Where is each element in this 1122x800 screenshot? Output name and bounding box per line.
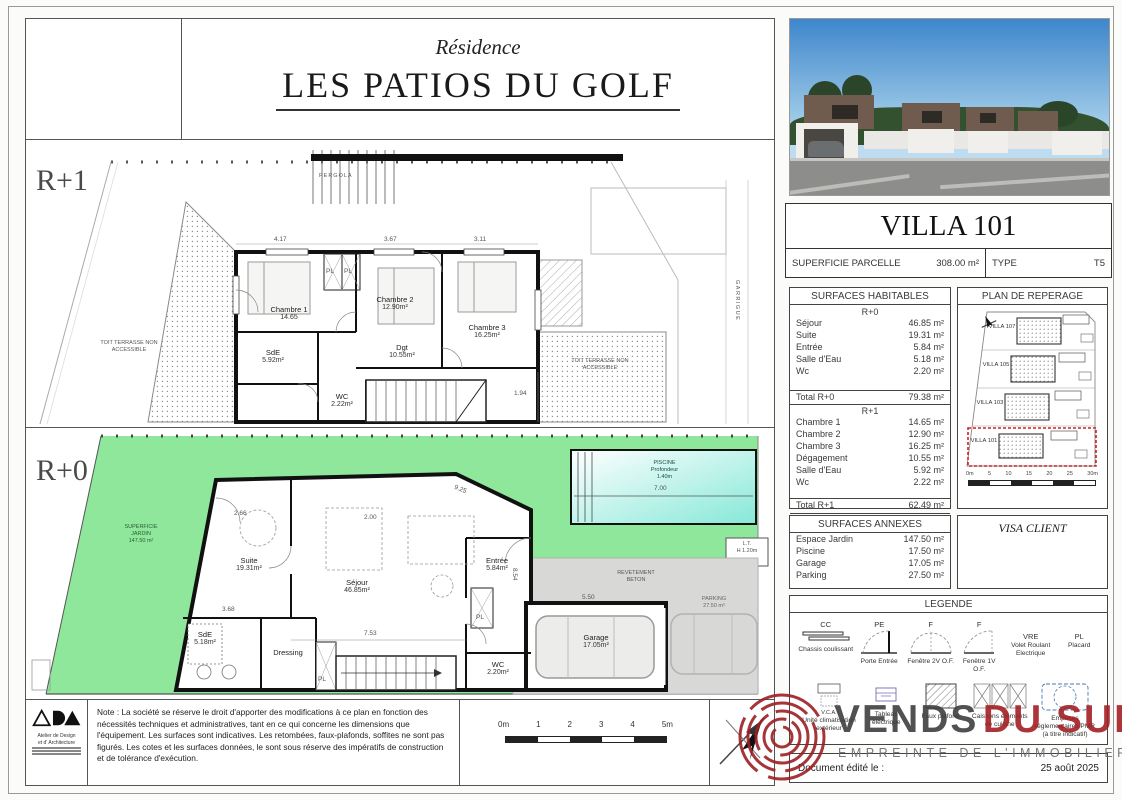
scale-bar xyxy=(505,736,667,743)
visa-client-box: VISA CLIENT xyxy=(957,515,1108,589)
plan-r1: R+1 PERGOLA 4.17 3.67 3.11 1.94 Chambre … xyxy=(25,140,775,428)
table-row: Salle d'Eau5.18 m² xyxy=(790,354,950,366)
scale-bar-ticks: 0m12345m xyxy=(498,720,673,729)
electrical-panel-icon xyxy=(873,682,899,708)
parcel-type-label: TYPE xyxy=(992,258,1017,269)
sh-r0-header: R+0 xyxy=(790,306,950,318)
r0-dim-2: 2.00 xyxy=(364,514,377,521)
r0-dim-4: 3.68 xyxy=(222,606,235,613)
r0-piscine-dim: 7.00 xyxy=(654,485,667,492)
r0-jardin-label: SUPERFICIE JARDIN 147.50 m² xyxy=(108,524,174,545)
villa-title: VILLA 101 xyxy=(786,204,1111,248)
drawing-area: Résidence LES PATIOS DU GOLF xyxy=(25,18,775,786)
r1-pergola-label: PERGOLA xyxy=(319,173,353,180)
photo-villa-upper xyxy=(1018,111,1058,133)
ada-fineprint-bar xyxy=(32,750,81,752)
legend-item-tableau: Tableau électrique xyxy=(860,682,912,739)
photo-villa-base xyxy=(908,129,954,153)
plan-reperage: PLAN DE REPERAGE VILLA xyxy=(957,287,1108,509)
parcel-surface-label: SUPERFICIE PARCELLE xyxy=(792,258,901,269)
r1-room-wc: WC2.22m² xyxy=(322,392,362,409)
r0-room-sejour: Séjour46.85m² xyxy=(326,578,388,595)
r1-room-dgt: Dgt10.55m² xyxy=(374,343,430,360)
parcel-type-value: T5 xyxy=(1094,258,1105,269)
reperage-villa-103: VILLA 103 xyxy=(976,400,1004,406)
photo-villa-base xyxy=(968,131,1008,153)
plan-reperage-map xyxy=(959,308,1106,470)
r0-room-dressing: Dressing xyxy=(262,648,314,657)
r1-floor-label: R+1 xyxy=(36,164,88,198)
table-row: Salle d'Eau5.92 m² xyxy=(790,465,950,477)
r0-piscine-label: PISCINE Profondeur 1.40m xyxy=(622,460,707,481)
legende-row1: CC Chassis coulissant PE Porte Entrée F … xyxy=(790,614,1107,674)
residence-subtitle: Résidence xyxy=(182,35,774,60)
window-2v-icon xyxy=(909,629,953,655)
plan-r1-drawing xyxy=(26,140,774,426)
table-row: Chambre 316.25 m² xyxy=(790,441,950,453)
reperage-villa-101: VILLA 101 xyxy=(970,438,998,444)
table-row: Séjour46.85 m² xyxy=(790,318,950,330)
table-row: Chambre 212.90 m² xyxy=(790,429,950,441)
surfaces-annexes-title: SURFACES ANNEXES xyxy=(790,516,950,533)
r0-pl-label-1: PL xyxy=(318,676,326,683)
ac-unit-icon xyxy=(814,682,844,708)
ada-name-line2: et d' Architecture xyxy=(26,740,87,747)
legend-item-f1v: F Fenêtre 1V O.F. xyxy=(956,620,1002,674)
r0-lt-label: L.T. H 1.20m xyxy=(727,541,767,555)
legend-item-pmr: Emprises réglementaires PMR (à titre ind… xyxy=(1033,682,1097,739)
photo-car xyxy=(808,141,844,157)
parcel-surface-value: 308.00 m² xyxy=(936,258,979,269)
r1-room-chambre3: Chambre 316.25m² xyxy=(454,323,520,340)
r1-dim-4: 1.94 xyxy=(514,390,527,397)
r1-dim-2: 3.67 xyxy=(384,236,397,243)
r1-pl-label-1: PL xyxy=(326,268,334,275)
photo-villa-window xyxy=(922,111,942,123)
table-row: Garage17.05 m² xyxy=(790,558,950,570)
r0-dim-5: 7.53 xyxy=(364,630,377,637)
legend-item-vre: VRE Volet Roulant Electrique xyxy=(1002,620,1059,674)
total-r0-row: Total R+079.38 m² xyxy=(790,390,950,403)
reperage-scale-bar xyxy=(968,480,1096,486)
surfaces-annexes-table: SURFACES ANNEXES Espace Jardin147.50 m² … xyxy=(789,515,951,589)
legend-item-cc: CC Chassis coulissant xyxy=(798,620,853,674)
pmr-clearance-icon xyxy=(1040,682,1090,712)
table-row: Dégagement10.55 m² xyxy=(790,453,950,465)
ada-fineprint-bar xyxy=(32,753,81,755)
kitchen-units-icon xyxy=(973,682,1027,710)
villa-title-box: VILLA 101 xyxy=(785,203,1112,249)
legend-item-vca: V.C.A. Unité climatisation extérieur xyxy=(800,682,858,739)
north-arrow-icon xyxy=(712,706,772,776)
r1-pl-label-2: PL xyxy=(344,268,352,275)
reperage-scale-ticks: 0m51015202530m xyxy=(966,471,1098,477)
legend-item-pe: PE Porte Entrée xyxy=(853,620,904,674)
r1-dim-1: 4.17 xyxy=(274,236,287,243)
footer-strip: Atelier de Design et d' Architecture Not… xyxy=(25,700,775,786)
legende-row2: V.C.A. Unité climatisation extérieur Tab… xyxy=(790,674,1107,739)
surfaces-habitables-title: SURFACES HABITABLES xyxy=(790,288,950,305)
r0-dim-6: 8.54 xyxy=(511,568,518,581)
document-date-value: 25 août 2025 xyxy=(1041,763,1099,774)
document-date-label: Document édité le : xyxy=(798,763,884,774)
parcel-surface-cell: SUPERFICIE PARCELLE 308.00 m² xyxy=(786,249,986,277)
reperage-villa-105: VILLA 105 xyxy=(982,362,1010,368)
r1-room-sde: SdE5.92m² xyxy=(250,348,296,365)
info-panel: VILLA 101 SUPERFICIE PARCELLE 308.00 m² … xyxy=(785,15,1112,790)
false-ceiling-icon xyxy=(924,682,958,710)
reperage-villa-107: VILLA 107 xyxy=(988,324,1016,330)
r0-revetement-label: REVETEMENT BETON xyxy=(594,570,678,584)
table-row: Espace Jardin147.50 m² xyxy=(790,534,950,546)
ada-fineprint-bar xyxy=(32,747,81,749)
table-row: Parking27.50 m² xyxy=(790,570,950,582)
visa-client-title: VISA CLIENT xyxy=(958,516,1107,536)
photo-villa-window xyxy=(980,113,996,123)
total-r1-row: Total R+162.49 m² xyxy=(790,498,950,511)
r1-terrace-right-label: TOIT TERRASSE NON ACCESSIBLE xyxy=(560,358,640,372)
legend-item-pl: PL Placard xyxy=(1059,620,1099,674)
r0-room-wc: WC2.20m² xyxy=(470,660,526,677)
r1-room-chambre1: Chambre 114.65 xyxy=(258,305,320,322)
r1-garrigue-label: GARRIGUE xyxy=(733,280,740,321)
table-row: Piscine17.50 m² xyxy=(790,546,950,558)
window-1v-icon xyxy=(962,629,996,655)
ada-logo-icon xyxy=(32,708,82,728)
r0-room-garage: Garage17.05m² xyxy=(566,633,626,650)
r0-parking-label: PARKING 27.50 m² xyxy=(674,596,754,610)
legend-item-fauxplafond: Faux plafond xyxy=(915,682,967,739)
parcel-row: SUPERFICIE PARCELLE 308.00 m² TYPE T5 xyxy=(785,249,1112,278)
table-row: Entrée5.84 m² xyxy=(790,342,950,354)
document-date-row: Document édité le : 25 août 2025 xyxy=(789,753,1108,783)
legende-title: LEGENDE xyxy=(790,596,1107,613)
parcel-type-cell: TYPE T5 xyxy=(986,249,1111,277)
legend-item-caissons: Caissons éléments de cuisine xyxy=(969,682,1031,739)
residence-name: LES PATIOS DU GOLF xyxy=(276,62,680,111)
r1-room-chambre2: Chambre 212.90m² xyxy=(364,295,426,312)
floorplan-document: { "page": {"watermark": "© EtreProprio.c… xyxy=(0,0,1122,800)
r0-dim-1: 2.66 xyxy=(234,510,247,517)
plan-r0: R+0 SUPERFICIE JARDIN 147.50 m² PISCINE … xyxy=(25,428,775,700)
r0-floor-label: R+0 xyxy=(36,454,88,488)
r0-dim-7: 5.50 xyxy=(582,594,595,601)
villa-photo xyxy=(789,18,1110,196)
surfaces-habitables-table: SURFACES HABITABLES R+0 Séjour46.85 m² S… xyxy=(789,287,951,509)
legende-box: LEGENDE CC Chassis coulissant PE Porte E… xyxy=(789,595,1108,745)
plan-reperage-title: PLAN DE REPERAGE xyxy=(958,288,1107,305)
sliding-window-icon xyxy=(802,629,850,643)
table-row: Wc2.20 m² xyxy=(790,366,950,378)
entry-door-icon xyxy=(859,629,899,655)
photo-villa-window xyxy=(832,105,858,119)
sh-r1-header: R+1 xyxy=(790,404,950,417)
r0-room-suite: Suite19.31m² xyxy=(218,556,280,573)
legend-item-f2v: F Fenêtre 2V O.F. xyxy=(905,620,956,674)
note-text: Note : La société se réserve le droit d'… xyxy=(88,700,460,785)
north-arrow-block xyxy=(710,700,774,785)
title-block: Résidence LES PATIOS DU GOLF xyxy=(25,18,775,140)
r1-dim-3: 3.11 xyxy=(474,236,486,243)
table-row: Suite19.31 m² xyxy=(790,330,950,342)
table-row: Chambre 114.65 m² xyxy=(790,417,950,429)
title-block-empty-cell xyxy=(26,19,182,139)
photo-villa-base xyxy=(1052,131,1102,155)
scale-bar-block: 0m12345m xyxy=(460,700,710,785)
table-row: Wc2.22 m² xyxy=(790,477,950,489)
residence-title: Résidence LES PATIOS DU GOLF xyxy=(182,19,774,139)
r0-room-sde: SdE5.18m² xyxy=(184,630,226,647)
r0-pl-label-2: PL xyxy=(476,614,484,621)
architect-logo-block: Atelier de Design et d' Architecture xyxy=(26,700,88,785)
r1-terrace-left-label: TOIT TERRASSE NON ACCESSIBLE xyxy=(98,340,160,354)
